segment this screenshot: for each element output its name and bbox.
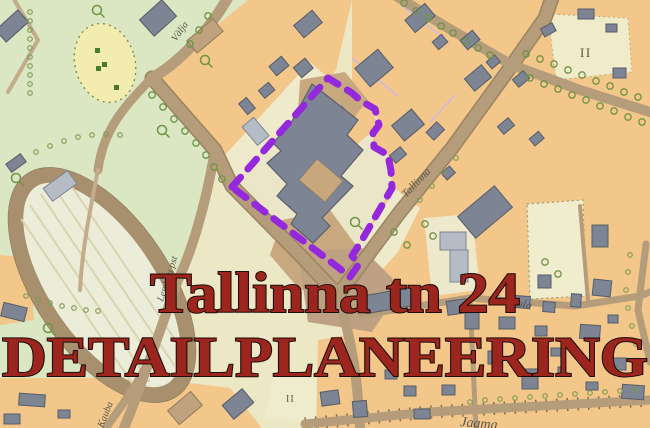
map-screenshot: Välja Tallinna Vambola Jaama Lembitu pst… [0, 0, 650, 428]
title-line-1: Tallinna tn 24 [150, 262, 520, 325]
base-map: Välja Tallinna Vambola Jaama Lembitu pst… [0, 0, 650, 428]
storeys-label-northeast: II [580, 45, 592, 60]
storeys-label-south: II [286, 394, 295, 405]
title-line-2: DETAILPLANEERING [2, 326, 648, 389]
street-label-jaama: Jaama [460, 415, 498, 428]
